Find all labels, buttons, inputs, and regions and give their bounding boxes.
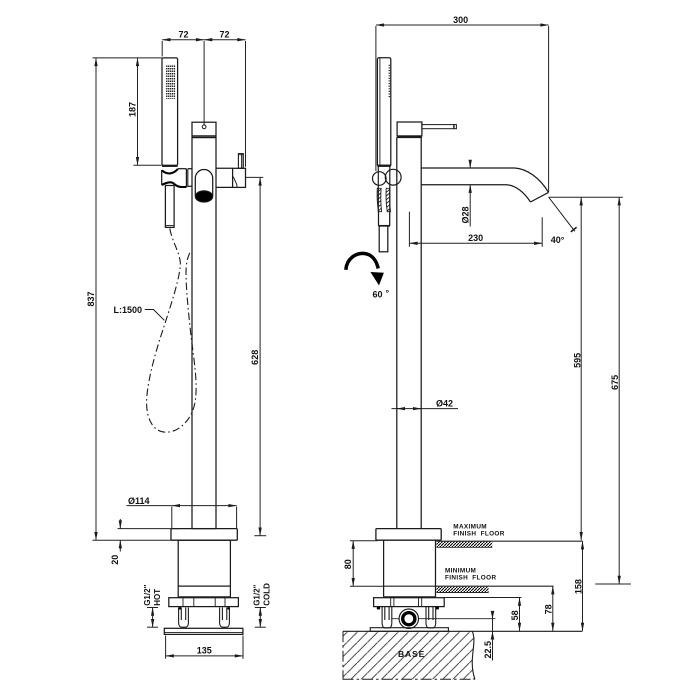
svg-text:595: 595 [572,353,582,368]
svg-text:675: 675 [610,375,620,390]
svg-text:G1/2″: G1/2″ [143,584,152,605]
svg-text:MAXIMUM: MAXIMUM [453,523,487,530]
svg-text:187: 187 [127,102,137,117]
svg-text:72: 72 [219,29,229,39]
svg-text:78: 78 [544,604,554,614]
svg-text:60: 60 [372,290,382,300]
svg-text:837: 837 [86,291,96,306]
svg-text:58: 58 [510,610,520,620]
svg-text:72: 72 [178,29,188,39]
svg-text:230: 230 [468,233,483,243]
svg-text:HOT: HOT [153,589,162,606]
svg-text:80: 80 [343,559,353,569]
svg-text:40°: 40° [551,235,565,245]
svg-text:158: 158 [573,579,583,594]
svg-text:FINISH FLOOR: FINISH FLOOR [453,530,504,537]
svg-text:Ø28: Ø28 [460,206,470,223]
svg-text:COLD: COLD [263,583,272,606]
svg-text:FINISH FLOOR: FINISH FLOOR [445,574,496,581]
svg-text:628: 628 [250,350,260,365]
svg-text:°: ° [385,288,389,298]
svg-text:20: 20 [110,555,120,565]
svg-text:Ø42: Ø42 [436,399,453,409]
svg-text:L:1500: L:1500 [114,305,143,315]
svg-text:Ø114: Ø114 [128,496,150,506]
svg-text:135: 135 [197,646,212,656]
svg-text:MINIMUM: MINIMUM [445,567,476,574]
svg-text:BASE: BASE [398,649,425,659]
svg-text:G1/2″: G1/2″ [253,584,262,605]
svg-text:300: 300 [453,15,468,25]
svg-text:22.5: 22.5 [483,641,493,659]
